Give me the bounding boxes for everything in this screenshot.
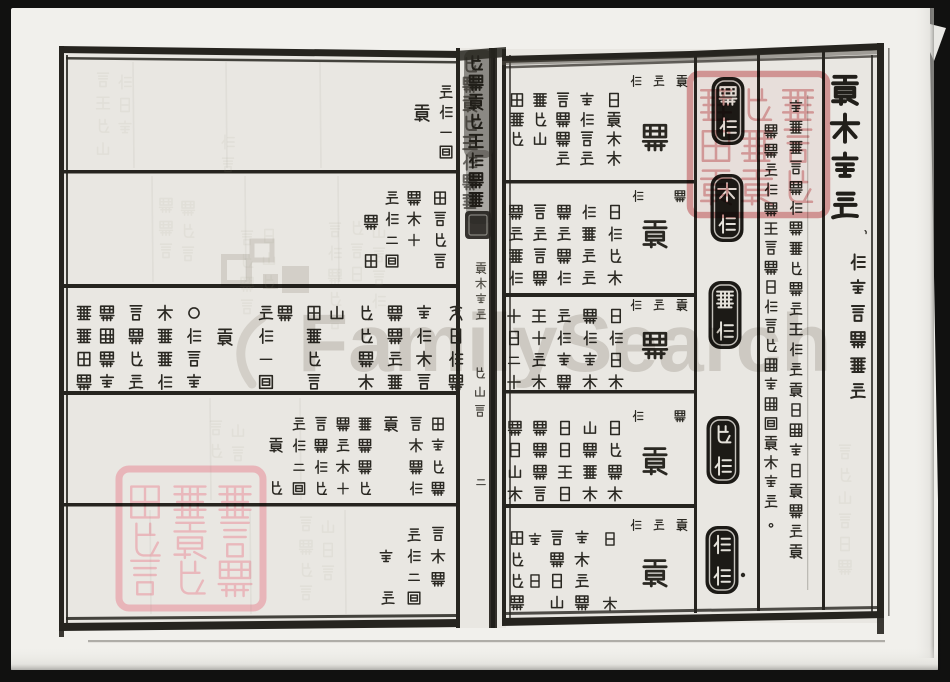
svg-text:FamilySearch: FamilySearch — [298, 298, 831, 389]
